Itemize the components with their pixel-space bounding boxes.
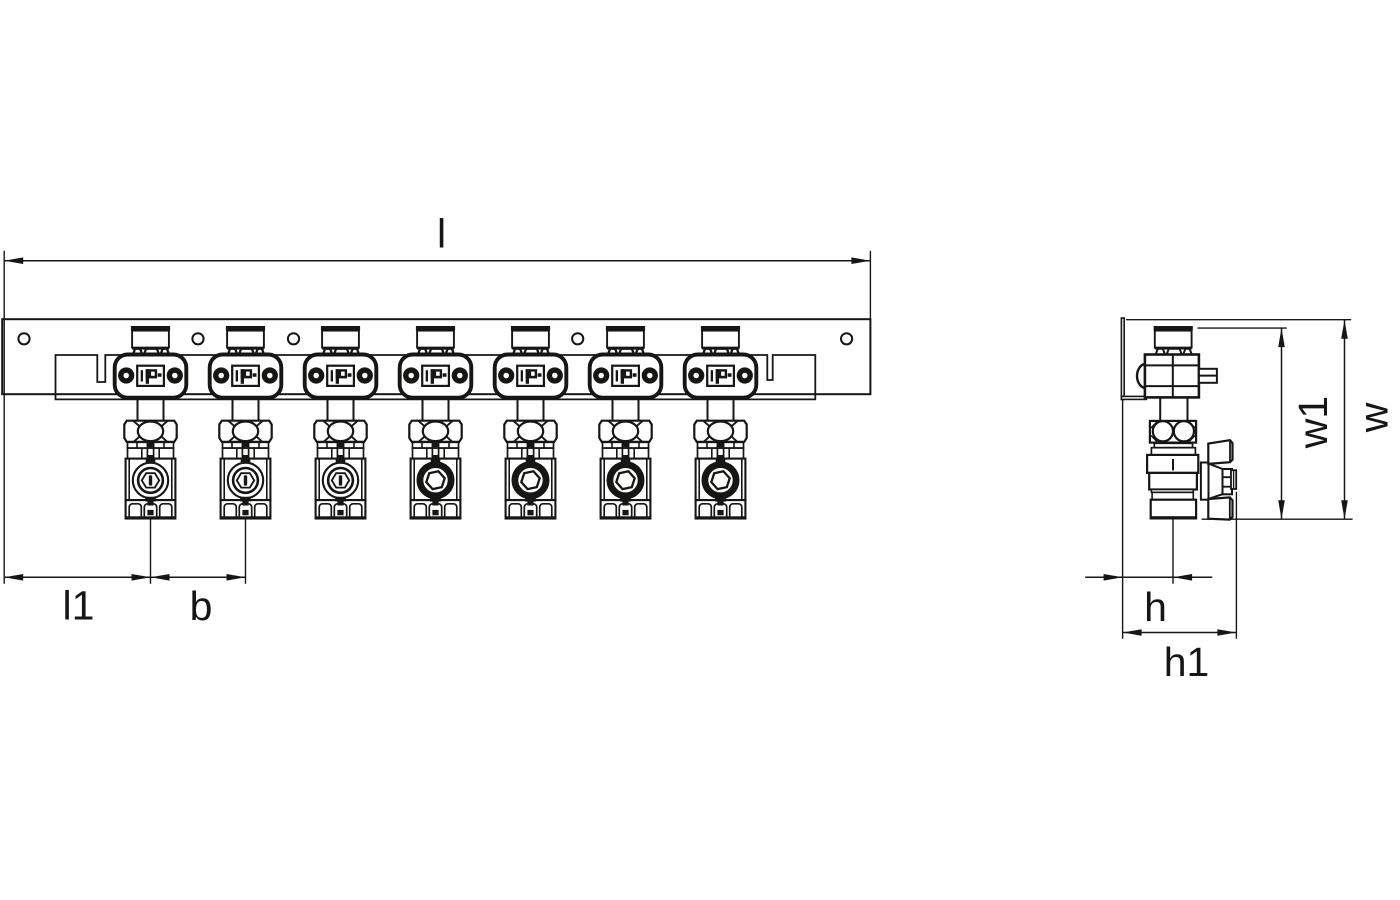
svg-text:w1: w1	[1290, 396, 1336, 449]
svg-text:l1: l1	[63, 582, 95, 628]
svg-text:h1: h1	[1164, 639, 1210, 685]
svg-text:l: l	[437, 211, 446, 257]
svg-text:w: w	[1351, 402, 1397, 433]
svg-text:h: h	[1144, 584, 1167, 630]
svg-text:b: b	[190, 583, 213, 629]
